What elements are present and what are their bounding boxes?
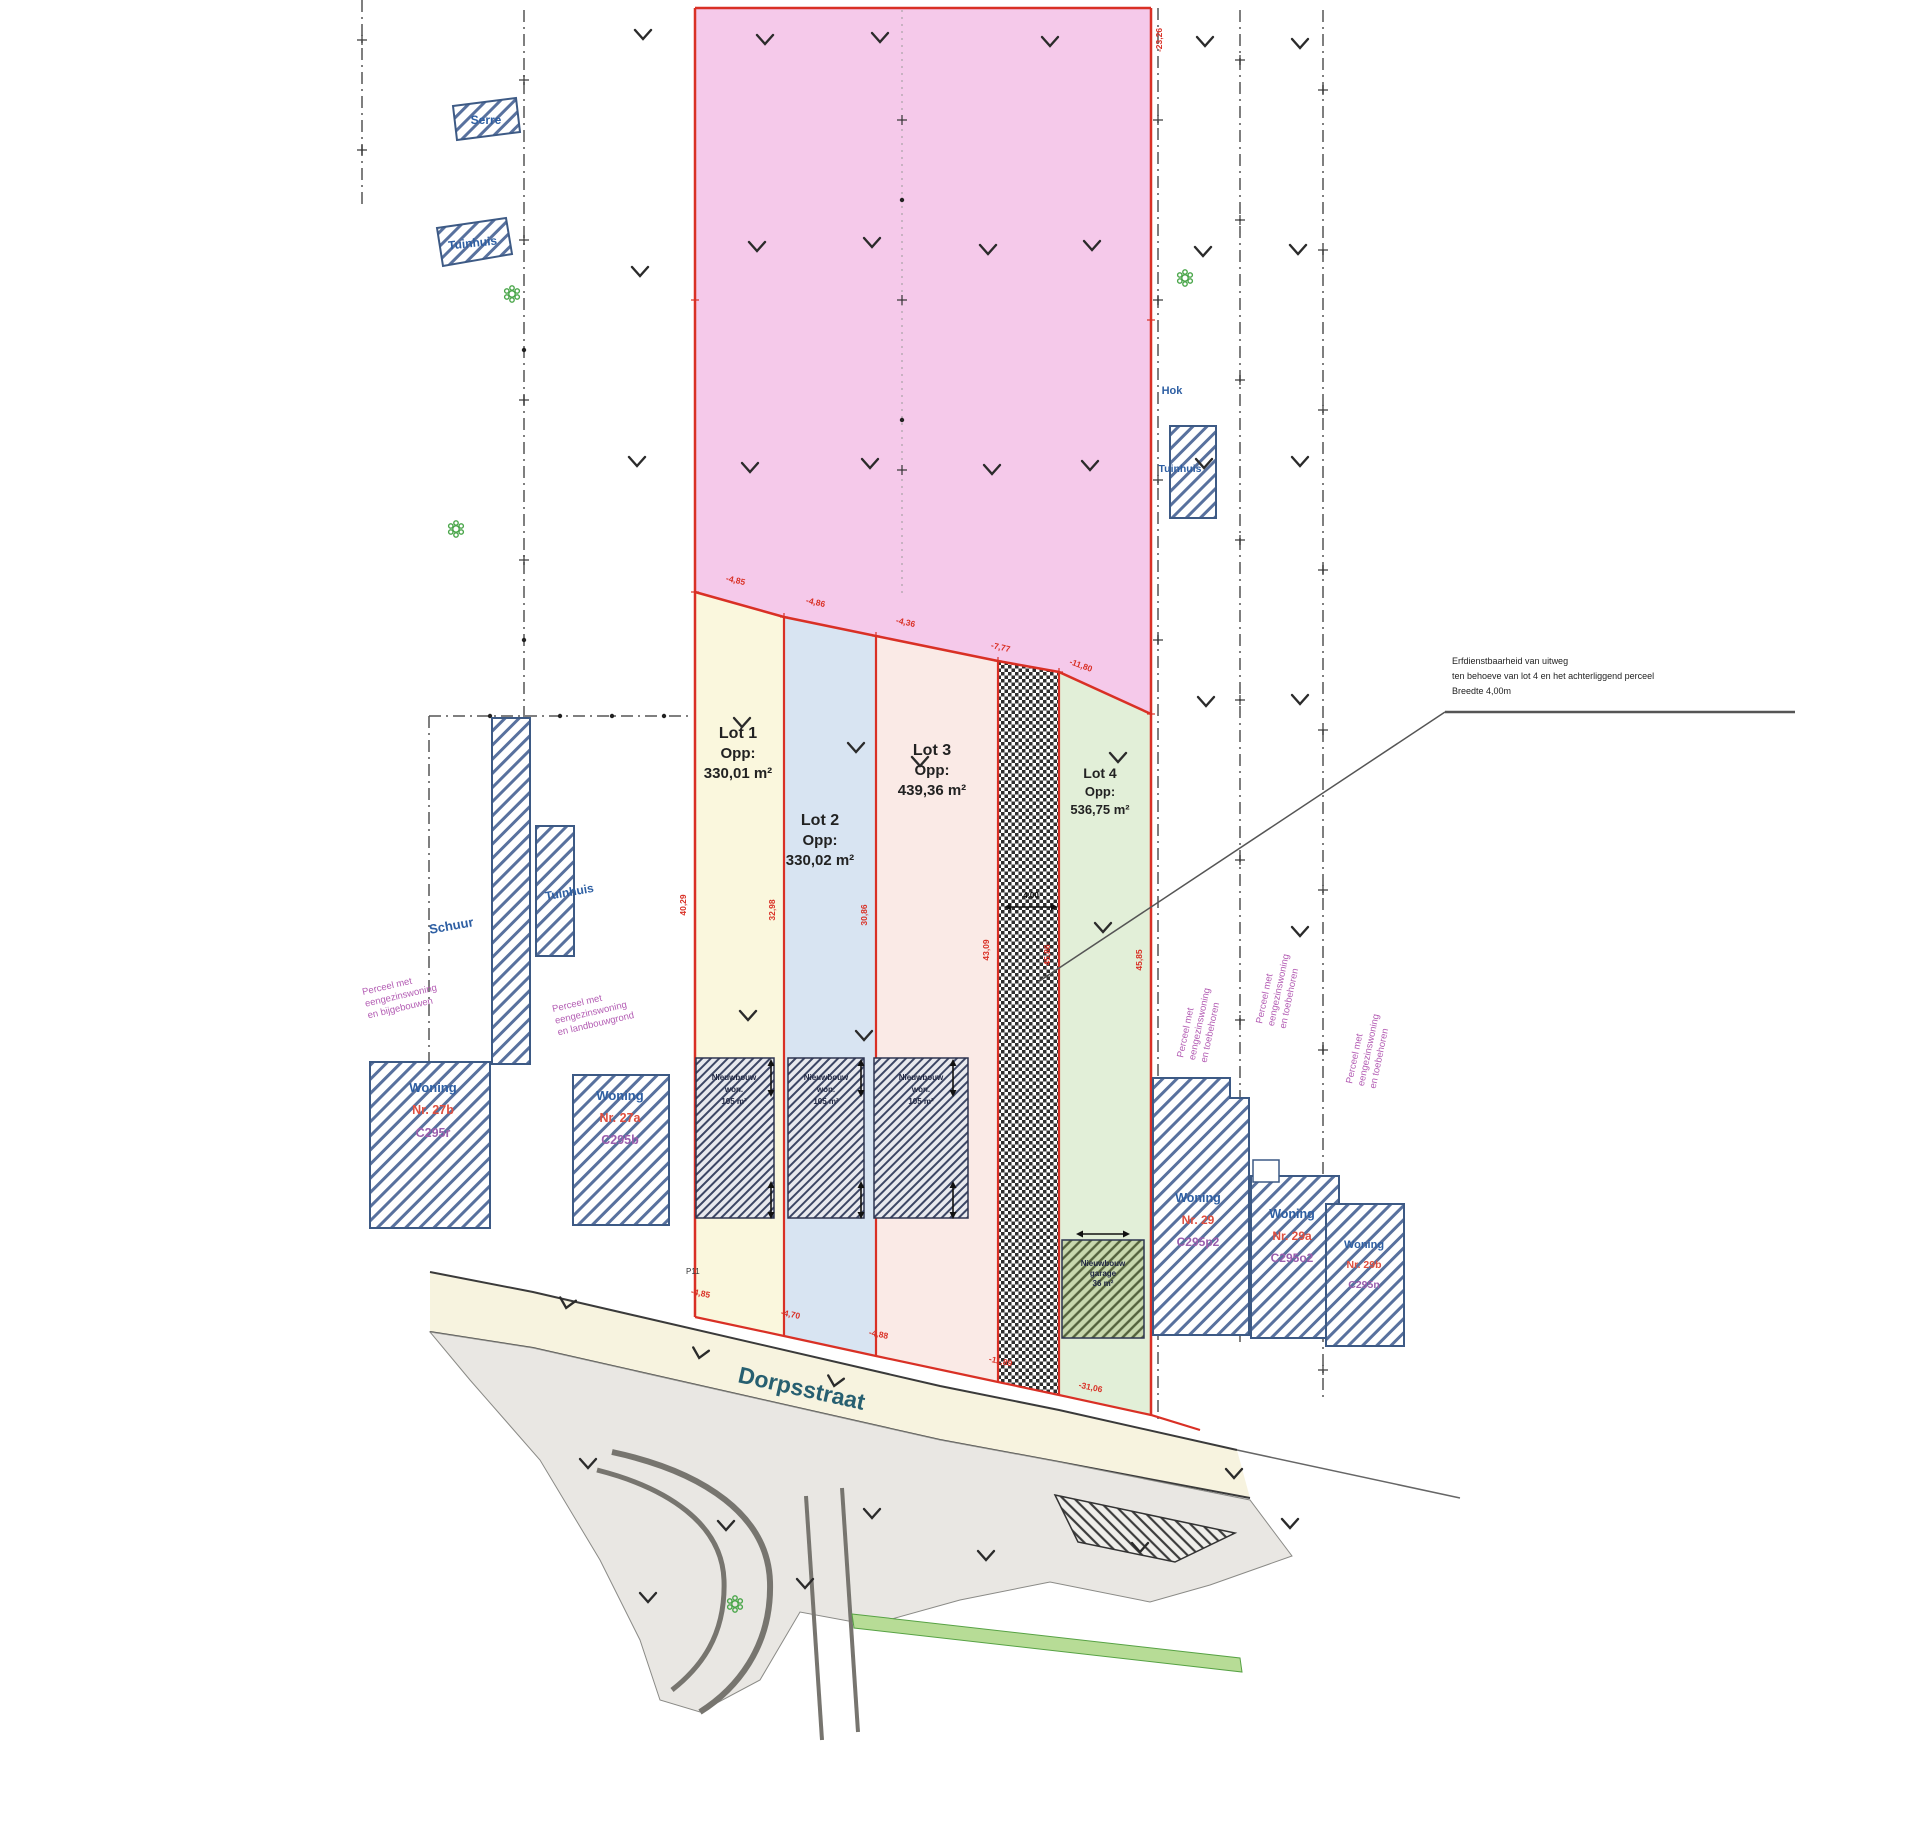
- svg-text:30,86: 30,86: [859, 904, 869, 926]
- svg-text:Nr. 29: Nr. 29: [1182, 1213, 1215, 1227]
- site-plan: Erfdienstbaarheid van uitweg ten behoeve…: [0, 0, 1920, 1846]
- lot1-opp: Opp:: [721, 745, 756, 762]
- lot3-area: 439,36 m²: [898, 782, 966, 799]
- strip-width-dim: 4,00: [1023, 891, 1039, 900]
- svg-text:Woning: Woning: [1344, 1239, 1384, 1251]
- svg-text:garage: garage: [1090, 1269, 1117, 1278]
- lot3-name: Lot 3: [913, 742, 951, 759]
- footprint-lot1: [696, 1058, 774, 1218]
- lot4-area: 536,75 m²: [1070, 802, 1130, 817]
- house-29a-label: Woning Nr. 29a C295o2: [1269, 1207, 1315, 1265]
- svg-text:C295p2: C295p2: [1177, 1235, 1220, 1249]
- serre-label: Serre: [471, 113, 502, 127]
- house-29-label: Woning Nr. 29 C295p2: [1175, 1191, 1221, 1249]
- svg-text:Nr. 29b: Nr. 29b: [1346, 1259, 1381, 1271]
- annotation-line-2: ten behoeve van lot 4 en het achterligge…: [1452, 671, 1654, 681]
- house-29b: [1326, 1204, 1404, 1346]
- lot2-area: [784, 617, 876, 1356]
- footprint-lot3: [874, 1058, 968, 1218]
- svg-text:43,09: 43,09: [981, 939, 991, 961]
- svg-text:40,29: 40,29: [678, 894, 688, 916]
- svg-text:Woning: Woning: [409, 1080, 456, 1095]
- svg-text:45,85: 45,85: [1134, 949, 1144, 971]
- schuur-building: [492, 718, 530, 1064]
- house-29a-notch: [1253, 1160, 1279, 1182]
- svg-text:C295n: C295n: [1348, 1279, 1380, 1291]
- house-29b-label: Woning Nr. 29b C295n: [1344, 1239, 1384, 1291]
- svg-text:Nr. 27a: Nr. 27a: [599, 1111, 641, 1125]
- lot4-opp: Opp:: [1085, 784, 1115, 799]
- garage-lot4: [1062, 1240, 1144, 1338]
- tuinhuis-right-label: Tuinhuis: [1159, 463, 1202, 475]
- svg-text:C295b: C295b: [601, 1133, 639, 1147]
- rear-parcel-pink: [695, 8, 1151, 714]
- hok-label: Hok: [1162, 385, 1184, 397]
- lot2-opp: Opp:: [803, 832, 838, 849]
- house-27a-label: Woning Nr. 27a C295b: [596, 1088, 643, 1147]
- svg-text:Nieuwbouw: Nieuwbouw: [712, 1073, 757, 1082]
- house-29: [1153, 1078, 1249, 1335]
- svg-text:Nr. 29a: Nr. 29a: [1272, 1229, 1312, 1243]
- svg-text:36 m²: 36 m²: [1093, 1279, 1114, 1288]
- svg-text:32,98: 32,98: [767, 899, 777, 921]
- lot1-name: Lot 1: [719, 725, 757, 742]
- svg-text:won.: won.: [911, 1085, 930, 1094]
- lot4-name: Lot 4: [1083, 765, 1117, 781]
- svg-text:-23,26: -23,26: [1154, 28, 1164, 52]
- svg-text:Woning: Woning: [596, 1088, 643, 1103]
- svg-text:Woning: Woning: [1269, 1207, 1315, 1221]
- svg-text:Nieuwbouw: Nieuwbouw: [1081, 1259, 1126, 1268]
- svg-text:105 m²: 105 m²: [908, 1097, 934, 1106]
- svg-text:105 m²: 105 m²: [721, 1097, 747, 1106]
- svg-text:C295o2: C295o2: [1271, 1251, 1314, 1265]
- svg-text:105 m²: 105 m²: [813, 1097, 839, 1106]
- svg-text:Nieuwbouw: Nieuwbouw: [804, 1073, 849, 1082]
- lot1-area: 330,01 m²: [704, 765, 772, 782]
- annotation-line-1: Erfdienstbaarheid van uitweg: [1452, 656, 1568, 666]
- annotation-line-3: Breedte 4,00m: [1452, 686, 1511, 696]
- svg-text:won.: won.: [816, 1085, 835, 1094]
- lot2-name: Lot 2: [801, 812, 839, 829]
- svg-text:Woning: Woning: [1175, 1191, 1221, 1205]
- lot2-area: 330,02 m²: [786, 852, 854, 869]
- house-27b-label: Woning Nr. 27b C295r: [409, 1080, 456, 1140]
- footprint-lot2: [788, 1058, 864, 1218]
- lot1-area: [695, 592, 784, 1336]
- svg-text:C295r: C295r: [416, 1126, 451, 1140]
- svg-text:Nieuwbouw: Nieuwbouw: [899, 1073, 944, 1082]
- driveway-strip: [998, 661, 1059, 1395]
- svg-text:Nr. 27b: Nr. 27b: [412, 1103, 454, 1117]
- svg-text:45,86: 45,86: [1042, 944, 1052, 966]
- point-label-p11: P11: [686, 1267, 700, 1276]
- svg-text:won.: won.: [724, 1085, 743, 1094]
